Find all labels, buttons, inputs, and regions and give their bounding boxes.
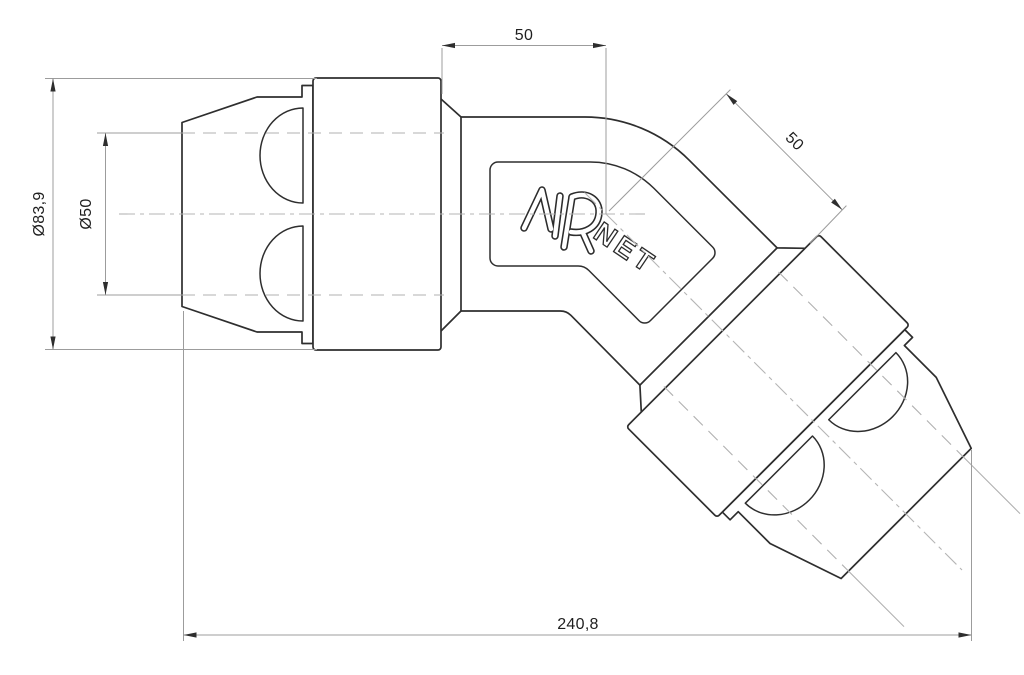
outer-diameter-value: Ø83,9 [31,191,48,236]
elbow-inner-contour [441,311,641,412]
pipe-diameter-value: Ø50 [78,198,95,229]
technical-drawing: NET Ø83,9 Ø50 50 5 [0,0,1024,675]
drawing-canvas: NET Ø83,9 Ø50 50 5 [0,0,1024,675]
hidden-line-bore-right-lower-ext [848,570,904,626]
top-socket-depth-value: 50 [515,27,533,44]
diagonal-socket-depth-value: 50 [782,129,807,154]
overall-length-value: 240,8 [557,616,599,633]
